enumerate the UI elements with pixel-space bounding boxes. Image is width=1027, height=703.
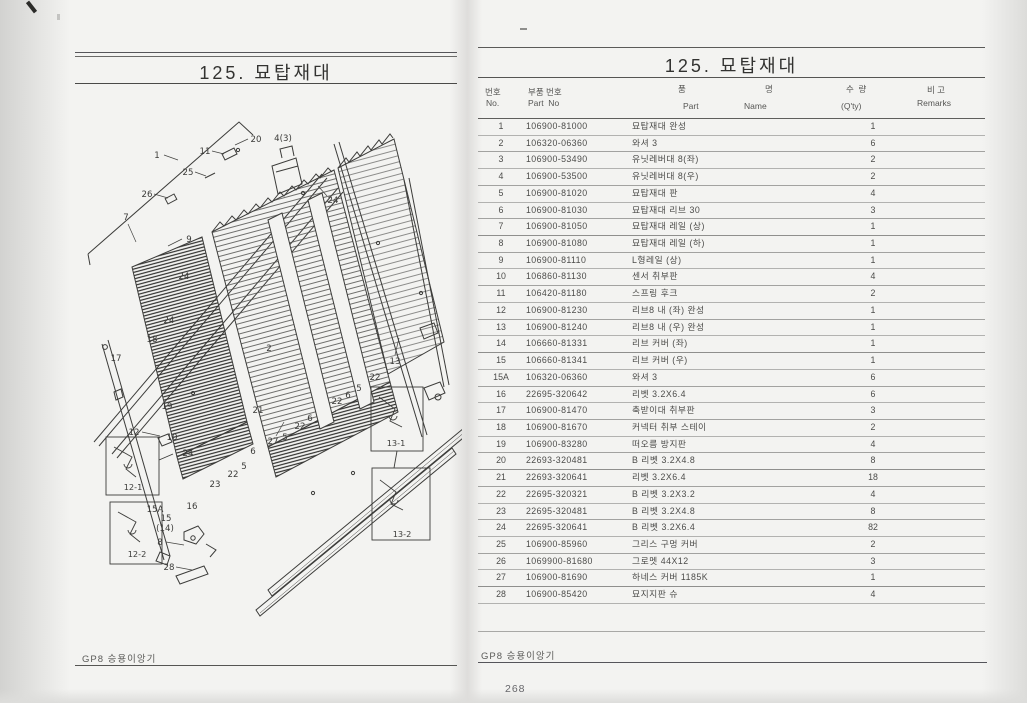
- cell-part-no: 106900-81690: [524, 570, 630, 586]
- cell-no: 18: [478, 420, 524, 436]
- table-row: 1622695-320642리벳 3.2X6.46: [478, 387, 985, 404]
- header-qty-kr: 수 량: [846, 83, 866, 95]
- cell-part-no: 22695-320481: [524, 504, 630, 520]
- scan-edge-right: [982, 0, 1027, 703]
- cell-qty: 2: [838, 286, 908, 302]
- cell-part-no: 106900-81110: [524, 253, 630, 269]
- cell-part-no: 106900-85960: [524, 537, 630, 553]
- cell-part-no: 22693-320481: [524, 453, 630, 469]
- callout-leader-28: [176, 567, 192, 570]
- cell-no: 11: [478, 286, 524, 302]
- callout-22: 22: [332, 397, 343, 407]
- cell-remarks: [908, 269, 985, 285]
- cell-qty: 1: [838, 236, 908, 252]
- cell-remarks: [908, 470, 985, 486]
- cell-part-name: 스프링 후크: [630, 286, 838, 302]
- callout-26: 26: [142, 190, 153, 200]
- cell-no: 10: [478, 269, 524, 285]
- callout-leader-1: [164, 155, 178, 160]
- table-row: 14106660-81331리브 커버 (좌)1: [478, 336, 985, 353]
- cell-remarks: [908, 186, 985, 202]
- cell-part-name: 묘탑재대 리브 30: [630, 203, 838, 219]
- cell-qty: 18: [838, 470, 908, 486]
- callout-6: 6: [345, 391, 350, 401]
- cell-no: 19: [478, 437, 524, 453]
- cell-qty: 1: [838, 219, 908, 235]
- cell-remarks: [908, 487, 985, 503]
- cell-part-no: 22695-320642: [524, 387, 630, 403]
- header-no-en: No.: [486, 98, 499, 108]
- right-footer-model: GP8 승용이앙기: [481, 648, 555, 662]
- cell-no: 16: [478, 387, 524, 403]
- cell-qty: 82: [838, 520, 908, 536]
- cell-part-name: 리벳 3.2X6.4: [630, 470, 838, 486]
- cell-qty: 3: [838, 403, 908, 419]
- cell-qty: 6: [838, 136, 908, 152]
- cell-part-name: B 리벳 3.2X4.8: [630, 504, 838, 520]
- cell-part-name: 그로멧 44X12: [630, 554, 838, 570]
- callout-24: 24: [183, 449, 194, 459]
- cell-part-name: 묘탑재대 판: [630, 186, 838, 202]
- table-row: 2106320-06360와셔 36: [478, 136, 985, 153]
- callout-5: 5: [241, 462, 246, 472]
- callout-24: 24: [179, 272, 190, 282]
- callout-13: 13: [390, 357, 401, 367]
- cell-part-no: 106900-81240: [524, 320, 630, 336]
- callout-2: 2: [266, 344, 271, 354]
- cell-remarks: [908, 437, 985, 453]
- cell-part-no: 106900-81050: [524, 219, 630, 235]
- cell-remarks: [908, 570, 985, 586]
- callout-28: 28: [164, 563, 175, 573]
- cell-part-no: 22695-320641: [524, 520, 630, 536]
- table-row: 13106900-81240리브8 내 (우) 완성1: [478, 320, 985, 337]
- cell-part-name: 묘탑재대 완성: [630, 119, 838, 135]
- table-row: 17106900-81470축받이대 취부판3: [478, 403, 985, 420]
- cell-part-no: 1069900-81680: [524, 554, 630, 570]
- shoe-bracket: [176, 566, 208, 584]
- cell-qty: 8: [838, 504, 908, 520]
- table-row: 28106900-85420묘지지판 슈4: [478, 587, 985, 604]
- header-remarks-en: Remarks: [917, 98, 951, 108]
- callout-21: 21: [253, 406, 264, 416]
- table-row: 10106860-81130센서 취부판4: [478, 269, 985, 286]
- cell-part-name: 커넥터 취부 스테이: [630, 420, 838, 436]
- callout-10: 10: [167, 433, 178, 443]
- cell-no: 15: [478, 353, 524, 369]
- callout-13-2: 13-2: [393, 529, 412, 539]
- cell-part-name: B 리벳 3.2X3.2: [630, 487, 838, 503]
- cell-qty: 3: [838, 554, 908, 570]
- table-row: 2122693-320641리벳 3.2X6.418: [478, 470, 985, 487]
- callout-6: 6: [307, 414, 312, 424]
- cell-remarks: [908, 320, 985, 336]
- cell-part-no: 106420-81180: [524, 286, 630, 302]
- header-partno-kr: 부품 번호: [528, 86, 562, 98]
- table-row: 15106660-81341리브 커버 (우)1: [478, 353, 985, 370]
- cell-part-name: 묘탑재대 레일 (상): [630, 219, 838, 235]
- callout-4(3): 4(3): [274, 134, 292, 144]
- cell-qty: 1: [838, 570, 908, 586]
- callout-24: 24: [164, 316, 175, 326]
- callout-22: 22: [295, 422, 306, 432]
- cell-no: 25: [478, 537, 524, 553]
- cell-no: 26: [478, 554, 524, 570]
- table-row: 3106900-53490유닛레버대 8(좌)2: [478, 152, 985, 169]
- cell-part-no: 106660-81341: [524, 353, 630, 369]
- cell-no: 1: [478, 119, 524, 135]
- cell-qty: 1: [838, 336, 908, 352]
- cell-no: 27: [478, 570, 524, 586]
- cell-remarks: [908, 403, 985, 419]
- left-title-box: 125. 묘탑재대: [75, 52, 457, 84]
- cell-no: 24: [478, 520, 524, 536]
- header-name-en-2: Name: [744, 101, 767, 111]
- scanned-catalog-spread: 125. 묘탑재대: [0, 0, 1027, 703]
- cell-part-name: 떠오름 방지판: [630, 437, 838, 453]
- cell-part-name: B 리벳 3.2X6.4: [630, 520, 838, 536]
- cell-qty: 6: [838, 387, 908, 403]
- cell-no: 22: [478, 487, 524, 503]
- cell-part-no: 106900-81670: [524, 420, 630, 436]
- cell-part-name: 묘탑재대 레일 (하): [630, 236, 838, 252]
- cell-remarks: [908, 353, 985, 369]
- cell-no: 23: [478, 504, 524, 520]
- cell-part-name: 리벳 3.2X6.4: [630, 387, 838, 403]
- cell-qty: 8: [838, 453, 908, 469]
- callout-leader-25: [195, 172, 206, 176]
- cell-qty: 4: [838, 269, 908, 285]
- table-row: 1106900-81000묘탑재대 완성1: [478, 119, 985, 136]
- callout-22: 22: [370, 373, 381, 383]
- right-page-title: 125. 묘탑재대: [478, 52, 985, 78]
- table-row: 2322695-320481B 리벳 3.2X4.88: [478, 504, 985, 521]
- cell-qty: 2: [838, 169, 908, 185]
- cell-qty: 2: [838, 152, 908, 168]
- header-name-kr-2: 명: [765, 83, 773, 95]
- cell-remarks: [908, 370, 985, 386]
- callout-12-2: 12-2: [128, 549, 147, 559]
- scan-speck: [57, 14, 60, 20]
- callout-12: 12: [129, 428, 140, 438]
- cell-part-no: 106660-81331: [524, 336, 630, 352]
- callout-9: 9: [186, 235, 191, 245]
- callout-18: 18: [147, 335, 158, 345]
- scan-dash-mark: [520, 28, 527, 30]
- table-row: 261069900-81680그로멧 44X123: [478, 554, 985, 571]
- cell-part-name: 와셔 3: [630, 370, 838, 386]
- cell-no: 14: [478, 336, 524, 352]
- cell-qty: 4: [838, 186, 908, 202]
- header-partno-en: Part No: [528, 98, 559, 108]
- cell-remarks: [908, 236, 985, 252]
- table-body: 1106900-81000묘탑재대 완성12106320-06360와셔 363…: [478, 119, 985, 604]
- left-footer-rule: [75, 665, 457, 666]
- cell-remarks: [908, 420, 985, 436]
- callout-leader-20: [235, 139, 248, 145]
- cell-part-no: 106320-06360: [524, 136, 630, 152]
- table-row: 2022693-320481B 리벳 3.2X4.88: [478, 453, 985, 470]
- callout-5: 5: [356, 384, 361, 394]
- cell-qty: 1: [838, 353, 908, 369]
- header-name-kr-1: 품: [678, 83, 686, 95]
- callout-13-1: 13-1: [387, 438, 406, 448]
- cell-no: 8: [478, 236, 524, 252]
- cell-no: 2: [478, 136, 524, 152]
- cell-part-name: 리브8 내 (좌) 완성: [630, 303, 838, 319]
- cell-remarks: [908, 169, 985, 185]
- cell-remarks: [908, 554, 985, 570]
- cell-no: 28: [478, 587, 524, 603]
- cell-remarks: [908, 453, 985, 469]
- parts-table: 번호 No. 부품 번호 Part No 품 명 Part Name 수 량 (…: [478, 77, 985, 604]
- left-footer-model: GP8 승용이앙기: [82, 651, 156, 665]
- callout-22: 22: [228, 470, 239, 480]
- scan-edge-left: [0, 0, 70, 703]
- cell-no: 17: [478, 403, 524, 419]
- cell-qty: 1: [838, 119, 908, 135]
- cell-part-no: 106900-81030: [524, 203, 630, 219]
- cell-part-name: L형레일 (상): [630, 253, 838, 269]
- cell-part-no: 22693-320641: [524, 470, 630, 486]
- table-row: 5106900-81020묘탑재대 판4: [478, 186, 985, 203]
- callout-6: 6: [250, 447, 255, 457]
- cell-no: 6: [478, 203, 524, 219]
- cell-part-no: 106900-81020: [524, 186, 630, 202]
- cell-part-no: 106320-06360: [524, 370, 630, 386]
- callout-1: 1: [154, 151, 159, 161]
- cell-part-name: 리브8 내 (우) 완성: [630, 320, 838, 336]
- cell-no: 15A: [478, 370, 524, 386]
- callout-27: 27: [268, 437, 279, 447]
- cell-part-name: 리브 커버 (좌): [630, 336, 838, 352]
- cell-part-name: 그리스 구멍 커버: [630, 537, 838, 553]
- cell-no: 20: [478, 453, 524, 469]
- cell-part-name: 유닛레버대 8(우): [630, 169, 838, 185]
- table-row: 19106900-83280떠오름 방지판4: [478, 437, 985, 454]
- callout-leader-12: [142, 432, 160, 436]
- cell-part-name: 묘지지판 슈: [630, 587, 838, 603]
- table-row: 15A106320-06360와셔 36: [478, 370, 985, 387]
- callout-16: 16: [187, 502, 198, 512]
- cell-part-name: 센서 취부판: [630, 269, 838, 285]
- table-row: 9106900-81110L형레일 (상)1: [478, 253, 985, 270]
- callout-12-1: 12-1: [124, 482, 143, 492]
- cell-qty: 1: [838, 303, 908, 319]
- cell-qty: 2: [838, 420, 908, 436]
- cell-part-no: 106900-53500: [524, 169, 630, 185]
- right-title-top-rule: [478, 47, 985, 48]
- cell-remarks: [908, 286, 985, 302]
- cell-remarks: [908, 152, 985, 168]
- cell-remarks: [908, 336, 985, 352]
- table-row: 25106900-85960그리스 구멍 커버2: [478, 537, 985, 554]
- hopper-part: [272, 146, 302, 194]
- table-row: 2422695-320641B 리벳 3.2X6.482: [478, 520, 985, 537]
- cell-no: 3: [478, 152, 524, 168]
- cell-part-name: 와셔 3: [630, 136, 838, 152]
- cell-remarks: [908, 119, 985, 135]
- header-qty-en: (Q'ty): [841, 101, 862, 111]
- table-row: 8106900-81080묘탑재대 레일 (하)1: [478, 236, 985, 253]
- cell-part-no: 106900-81230: [524, 303, 630, 319]
- table-header: 번호 No. 부품 번호 Part No 품 명 Part Name 수 량 (…: [478, 78, 985, 119]
- callout-25: 25: [183, 168, 194, 178]
- cell-qty: 6: [838, 370, 908, 386]
- cell-qty: 3: [838, 203, 908, 219]
- cell-part-name: 축받이대 취부판: [630, 403, 838, 419]
- callout-leader-9: [168, 239, 182, 246]
- callout-15: 15: [161, 514, 172, 524]
- cell-part-no: 106900-81080: [524, 236, 630, 252]
- header-no-kr: 번호: [485, 86, 501, 98]
- cell-part-name: 유닛레버대 8(좌): [630, 152, 838, 168]
- cell-qty: 2: [838, 537, 908, 553]
- cell-no: 4: [478, 169, 524, 185]
- table-bottom-rule: [478, 631, 985, 632]
- callout-(14): (14): [156, 524, 174, 534]
- table-row: 2222695-320321B 리벳 3.2X3.24: [478, 487, 985, 504]
- cell-part-no: 106900-53490: [524, 152, 630, 168]
- cell-part-name: B 리벳 3.2X4.8: [630, 453, 838, 469]
- callout-5: 5: [282, 433, 287, 443]
- cell-qty: 1: [838, 320, 908, 336]
- cell-remarks: [908, 520, 985, 536]
- cell-remarks: [908, 387, 985, 403]
- cell-remarks: [908, 587, 985, 603]
- callout-8: 8: [157, 538, 162, 548]
- cell-part-name: 하네스 커버 1185K: [630, 570, 838, 586]
- callout-23: 23: [210, 480, 221, 490]
- table-row: 11106420-81180스프링 후크2: [478, 286, 985, 303]
- right-footer-rule: [478, 662, 987, 663]
- cell-remarks: [908, 253, 985, 269]
- callout-19: 19: [162, 402, 173, 412]
- callout-leader-11: [212, 151, 224, 154]
- callout-20: 20: [251, 135, 262, 145]
- left-page-title: 125. 묘탑재대: [75, 59, 457, 85]
- callout-17: 17: [111, 354, 122, 364]
- cell-remarks: [908, 219, 985, 235]
- table-row: 4106900-53500유닛레버대 8(우)2: [478, 169, 985, 186]
- callout-7: 7: [123, 213, 128, 223]
- cell-no: 5: [478, 186, 524, 202]
- cell-part-no: 106900-83280: [524, 437, 630, 453]
- callout-leader-26: [154, 194, 168, 198]
- table-row: 12106900-81230리브8 내 (좌) 완성1: [478, 303, 985, 320]
- callout-24: 24: [328, 196, 339, 206]
- scan-artifact-mark: [26, 1, 37, 14]
- cell-part-no: 106900-81000: [524, 119, 630, 135]
- cell-qty: 1: [838, 253, 908, 269]
- cell-no: 21: [478, 470, 524, 486]
- page-number: 268: [505, 683, 526, 695]
- cell-remarks: [908, 504, 985, 520]
- callout-leader-8: [166, 542, 184, 545]
- cell-remarks: [908, 203, 985, 219]
- cell-no: 9: [478, 253, 524, 269]
- parts-exploded-diagram: 111204(3)2526792424241817191210242212322…: [72, 92, 462, 652]
- cell-qty: 4: [838, 587, 908, 603]
- table-row: 6106900-81030묘탑재대 리브 303: [478, 203, 985, 220]
- table-row: 18106900-81670커넥터 취부 스테이2: [478, 420, 985, 437]
- table-row: 27106900-81690하네스 커버 1185K1: [478, 570, 985, 587]
- table-row: 7106900-81050묘탑재대 레일 (상)1: [478, 219, 985, 236]
- cell-part-no: 22695-320321: [524, 487, 630, 503]
- cell-remarks: [908, 537, 985, 553]
- cell-part-no: 106900-85420: [524, 587, 630, 603]
- cell-part-name: 리브 커버 (우): [630, 353, 838, 369]
- cell-qty: 4: [838, 487, 908, 503]
- cell-no: 7: [478, 219, 524, 235]
- header-remarks-kr: 비 고: [927, 84, 945, 96]
- callout-11: 11: [200, 147, 211, 157]
- cell-part-no: 106860-81130: [524, 269, 630, 285]
- cell-part-no: 106900-81470: [524, 403, 630, 419]
- callout-leader-7: [128, 224, 136, 242]
- cell-no: 13: [478, 320, 524, 336]
- cell-no: 12: [478, 303, 524, 319]
- cell-qty: 4: [838, 437, 908, 453]
- cell-remarks: [908, 303, 985, 319]
- header-name-en-1: Part: [683, 101, 699, 111]
- cell-remarks: [908, 136, 985, 152]
